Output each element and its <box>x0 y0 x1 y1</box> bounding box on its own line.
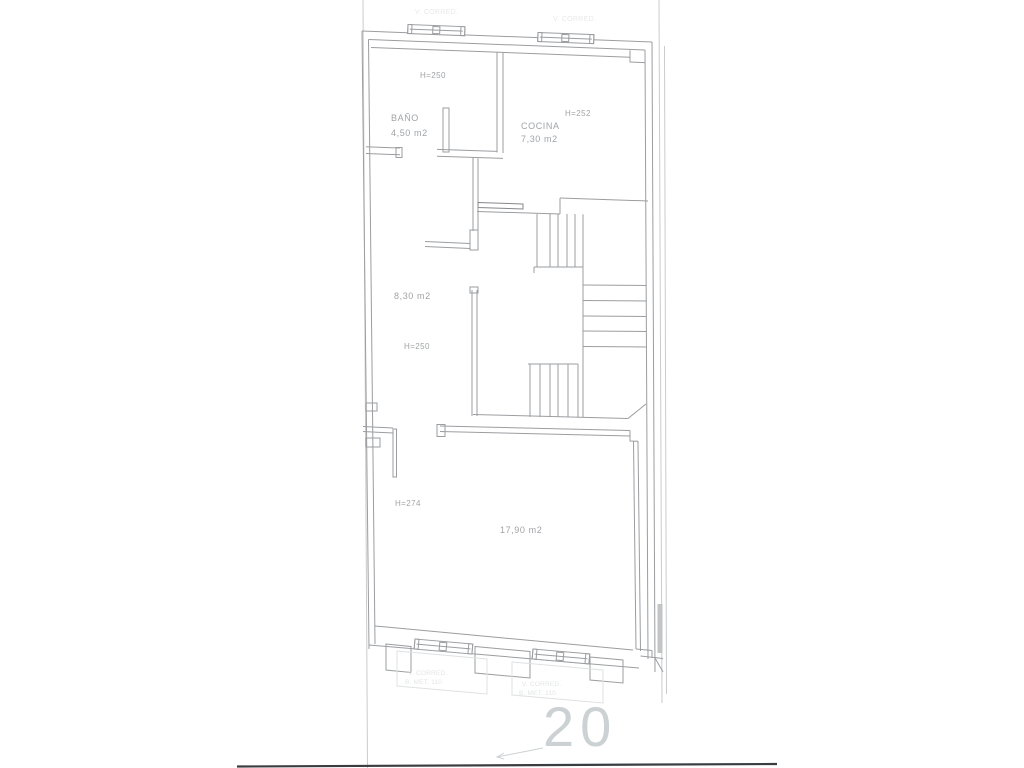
window-annotation-top-right: V. CORRED. <box>553 16 596 23</box>
hall-height-label: H=250 <box>404 342 430 351</box>
plan-number-leader-arrow <box>497 748 543 759</box>
window-top-left <box>408 25 465 36</box>
bath-area-label: 4,50 m2 <box>391 128 428 138</box>
bath-room-label: BAÑO <box>391 113 419 123</box>
kitchen-height-label: H=252 <box>565 109 591 118</box>
kitchen-area-label: 7,30 m2 <box>521 134 558 144</box>
bath-height-label: H=250 <box>420 71 446 80</box>
window-top-right <box>538 33 594 44</box>
right-pilaster-bar <box>658 604 663 653</box>
door-leaf <box>393 429 397 477</box>
plan-number: 20 <box>543 694 617 759</box>
hall-doorway <box>363 403 397 477</box>
balcony-annotation-left-2: B. MET. 110 <box>405 679 442 686</box>
staircase <box>473 214 646 419</box>
floor-plan-page: V. CORRED. V. CORRED. H=250 BAÑO 4,50 m2… <box>0 0 1024 768</box>
floor-plan-drawing <box>0 0 1024 768</box>
kitchen-room-label: COCINA <box>521 121 560 131</box>
kitchen-corner-notch <box>630 50 645 62</box>
stair-chamfer <box>628 404 646 419</box>
stairwell-partitions <box>425 158 523 416</box>
window-bottom-right <box>532 649 590 664</box>
bathroom-walls <box>366 48 630 159</box>
bottom-baseline <box>237 764 777 767</box>
balcony-annotation-right-1: V. CORRED. <box>522 681 561 688</box>
living-area-label: 17,90 m2 <box>500 525 542 535</box>
living-height-label: H=274 <box>395 499 421 508</box>
door-jamb <box>366 403 377 411</box>
window-annotation-top-left: V. CORRED. <box>415 9 458 16</box>
door-jamb <box>470 230 478 250</box>
balcony-annotation-left-1: V. CORRED. <box>408 670 447 677</box>
window-bottom-left <box>414 639 473 654</box>
stair-threshold-step <box>478 203 523 210</box>
bath-door-jamb <box>396 148 402 158</box>
shower-partition-wall <box>443 108 449 152</box>
hall-area-label: 8,30 m2 <box>394 291 431 301</box>
